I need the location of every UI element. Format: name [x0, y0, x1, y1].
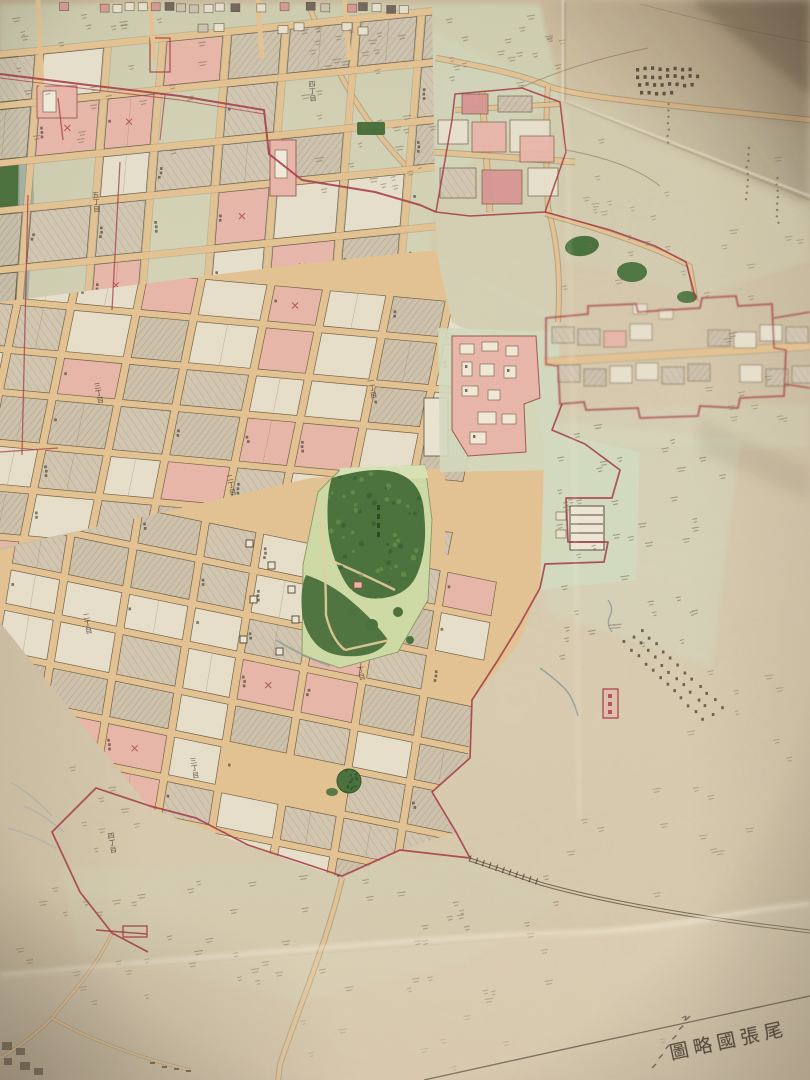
map-photo: 五丁目四丁目三丁目二丁目一丁目二丁目三丁目一丁目四丁目 圖略國張尾 [0, 0, 810, 1080]
paper-grain [0, 0, 810, 1080]
map-illustration: 五丁目四丁目三丁目二丁目一丁目二丁目三丁目一丁目四丁目 [0, 0, 810, 1080]
